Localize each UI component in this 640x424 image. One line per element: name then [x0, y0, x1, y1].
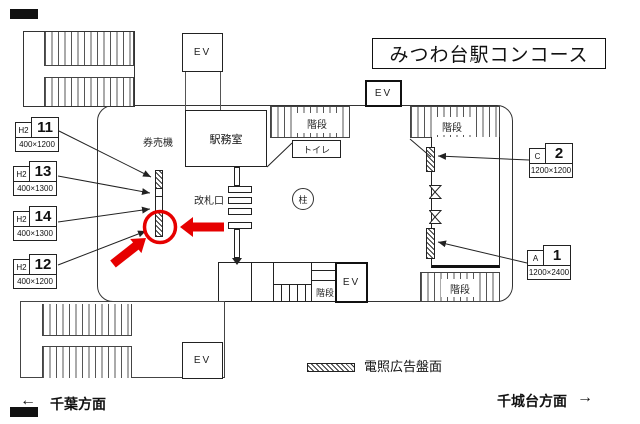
- left-arrow-icon: ←: [20, 392, 36, 410]
- stair-tread: [281, 284, 282, 301]
- ticket-gate-label: 改札口: [194, 192, 224, 207]
- sign-size: 1200×1200: [529, 163, 573, 178]
- stairs-label: 階段: [441, 279, 479, 297]
- ticket-gate-bar: [228, 222, 252, 229]
- sign-size: 400×1200: [15, 137, 59, 152]
- scan-mark-top-left: [10, 9, 38, 19]
- ticket-gate-bar: [228, 186, 252, 193]
- sign-c-2: C 2 1200×1200: [529, 143, 573, 178]
- elevator-top-left: EV: [182, 33, 223, 72]
- door-symbol: [429, 185, 442, 199]
- stair-tread: [297, 284, 298, 301]
- stair-flight: [42, 304, 132, 336]
- ticket-machine-label: 券売機: [143, 134, 173, 149]
- sign-prefix: H2: [15, 122, 32, 138]
- page-title: みつわ台駅コンコース: [372, 38, 606, 69]
- stairs-top-right: 階段: [410, 106, 500, 138]
- sign-number: 14: [29, 206, 57, 227]
- elevator-bottom-center: EV: [335, 262, 368, 303]
- sign-prefix: H2: [13, 259, 30, 275]
- ad-panel-14: [156, 197, 162, 212]
- stair-flight: [42, 346, 132, 378]
- stair-tread: [289, 284, 290, 301]
- elevator-bottom-left: EV: [182, 342, 223, 379]
- station-office-room: 駅務室: [185, 110, 267, 167]
- stairs-label: 階段: [295, 113, 339, 133]
- sign-number: 13: [29, 161, 57, 182]
- stair-tread: [305, 284, 306, 301]
- sign-h2-13: H2 13 400×1300: [13, 161, 57, 196]
- sign-size: 1200×2400: [527, 265, 571, 280]
- door-symbol: [429, 210, 442, 224]
- sign-h2-11: H2 11 400×1200: [15, 117, 59, 152]
- ad-panel-11: [156, 171, 162, 189]
- sign-prefix: A: [527, 250, 544, 266]
- ad-panel-12: [156, 212, 162, 236]
- shelf-line: [311, 280, 336, 281]
- elevator-top-center: EV: [365, 80, 402, 107]
- shelf-line: [311, 270, 336, 271]
- ad-panel-a1: [426, 228, 435, 259]
- sign-size: 400×1300: [13, 181, 57, 196]
- ad-panel-strip: [155, 170, 163, 237]
- ticket-gate-bar: [228, 208, 252, 215]
- toilet-room: トイレ: [292, 140, 341, 158]
- ad-panel-c2: [426, 147, 435, 172]
- sign-number: 1: [543, 245, 571, 266]
- right-arrow-icon: →: [577, 389, 593, 407]
- stairs-top-left: [23, 31, 135, 107]
- pillar: 柱: [292, 188, 314, 210]
- sign-number: 2: [545, 143, 573, 164]
- sign-h2-14: H2 14 400×1300: [13, 206, 57, 241]
- stair-flight: [44, 32, 134, 66]
- gate-rail-lower: [234, 229, 240, 258]
- wall: [273, 263, 274, 301]
- direction-chishirodai: 千城台方面: [497, 391, 567, 411]
- ad-panel-13: [156, 189, 162, 197]
- sign-a-1: A 1 1200×2400: [527, 245, 571, 280]
- sign-number: 12: [29, 254, 57, 275]
- gate-rail-upper: [234, 167, 240, 186]
- stair-flight: [44, 77, 134, 106]
- elevator-shaft: [185, 72, 221, 110]
- stairs-label: 階段: [433, 117, 471, 135]
- right-room: [431, 137, 500, 268]
- sign-number: 11: [31, 117, 59, 138]
- station-concourse-floorplan: みつわ台駅コンコース EV 駅務室 券売機 トイレ 階段 EV 階段 階段: [0, 0, 640, 424]
- legend-swatch: [307, 363, 355, 372]
- stairs-top-center: 階段: [270, 106, 350, 138]
- sign-prefix: C: [529, 148, 546, 164]
- sign-prefix: H2: [13, 166, 30, 182]
- sign-size: 400×1300: [13, 226, 57, 241]
- sign-prefix: H2: [13, 211, 30, 227]
- direction-chiba: 千葉方面: [50, 394, 106, 414]
- legend-label: 電照広告盤面: [364, 356, 442, 375]
- ticket-gate-bar: [228, 197, 252, 204]
- sign-size: 400×1200: [13, 274, 57, 289]
- sign-h2-12: H2 12 400×1200: [13, 254, 57, 289]
- stairs-bottom-right: 階段: [420, 272, 500, 302]
- wall: [251, 263, 252, 301]
